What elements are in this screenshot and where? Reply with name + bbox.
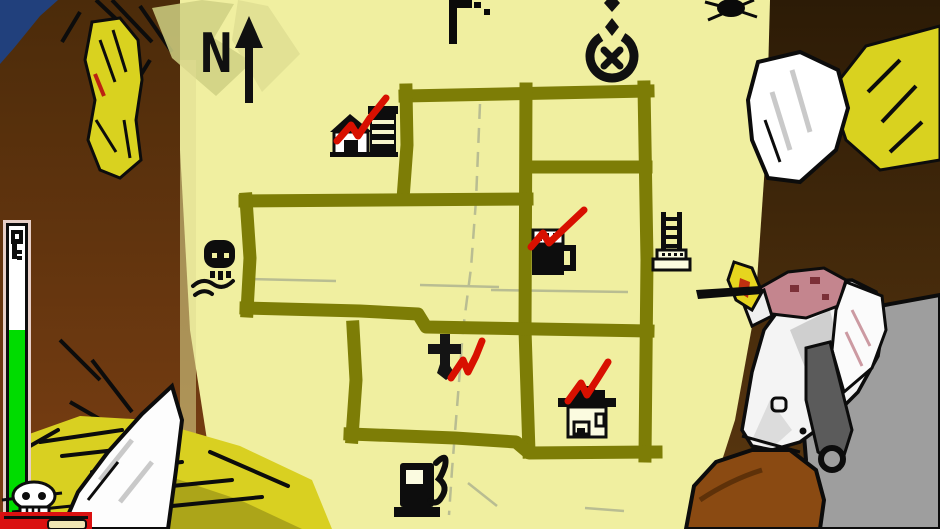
clasp-ring	[821, 448, 843, 470]
road-left-upper	[403, 90, 407, 199]
paper-edge-shade	[180, 60, 196, 440]
road-center-vertical	[525, 89, 529, 452]
health-meter	[3, 220, 31, 518]
road-bottom-left-vertical	[352, 327, 356, 437]
road-left-vertical	[246, 199, 250, 311]
road-right-vertical	[644, 87, 647, 456]
compass-north-label: N	[200, 22, 233, 85]
road-mid-horizontal	[245, 199, 527, 201]
game-viewport[interactable]: N	[0, 0, 940, 529]
bottom-red-bar	[0, 512, 92, 529]
eye-dot	[800, 428, 807, 435]
scene-canvas: N	[0, 0, 940, 529]
left-hand	[85, 18, 142, 178]
